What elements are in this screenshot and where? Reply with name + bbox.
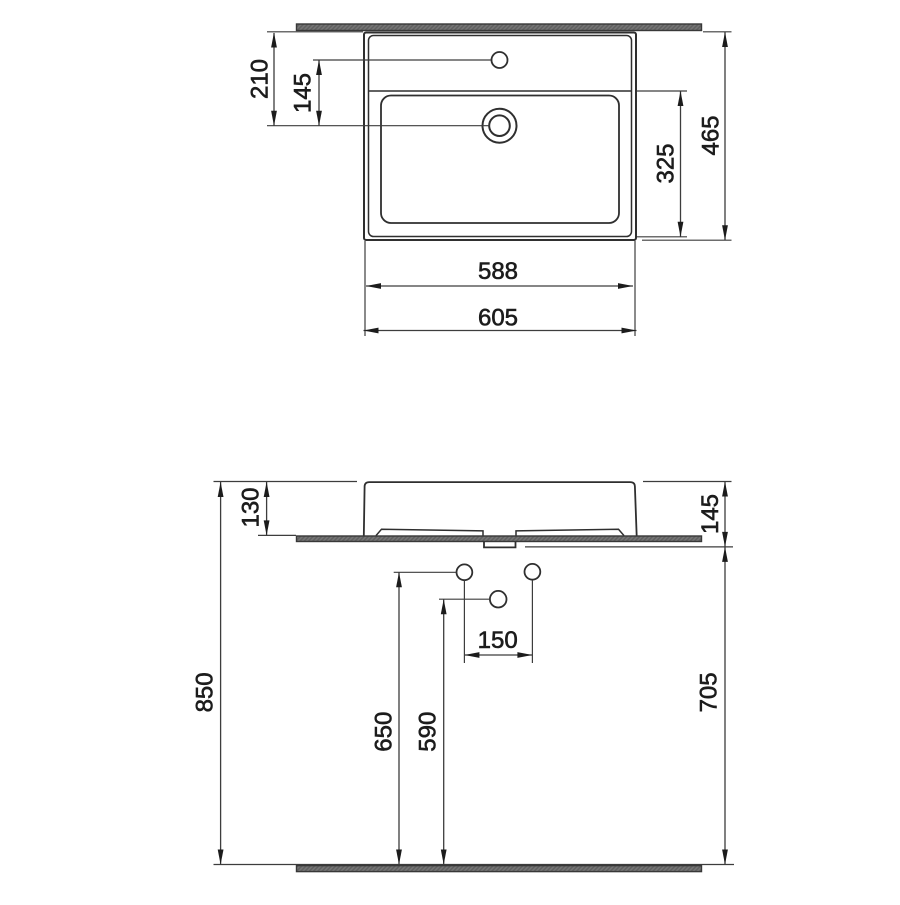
svg-text:605: 605 [478,305,518,332]
svg-text:705: 705 [696,672,723,712]
svg-text:588: 588 [478,258,518,285]
svg-text:210: 210 [247,59,274,99]
svg-text:850: 850 [192,672,219,712]
svg-text:145: 145 [290,73,317,113]
svg-text:465: 465 [698,115,725,155]
svg-text:150: 150 [478,627,518,654]
svg-text:145: 145 [697,494,724,534]
svg-text:650: 650 [371,712,398,752]
svg-text:130: 130 [238,487,265,527]
svg-text:325: 325 [653,143,680,183]
svg-text:590: 590 [415,712,442,752]
